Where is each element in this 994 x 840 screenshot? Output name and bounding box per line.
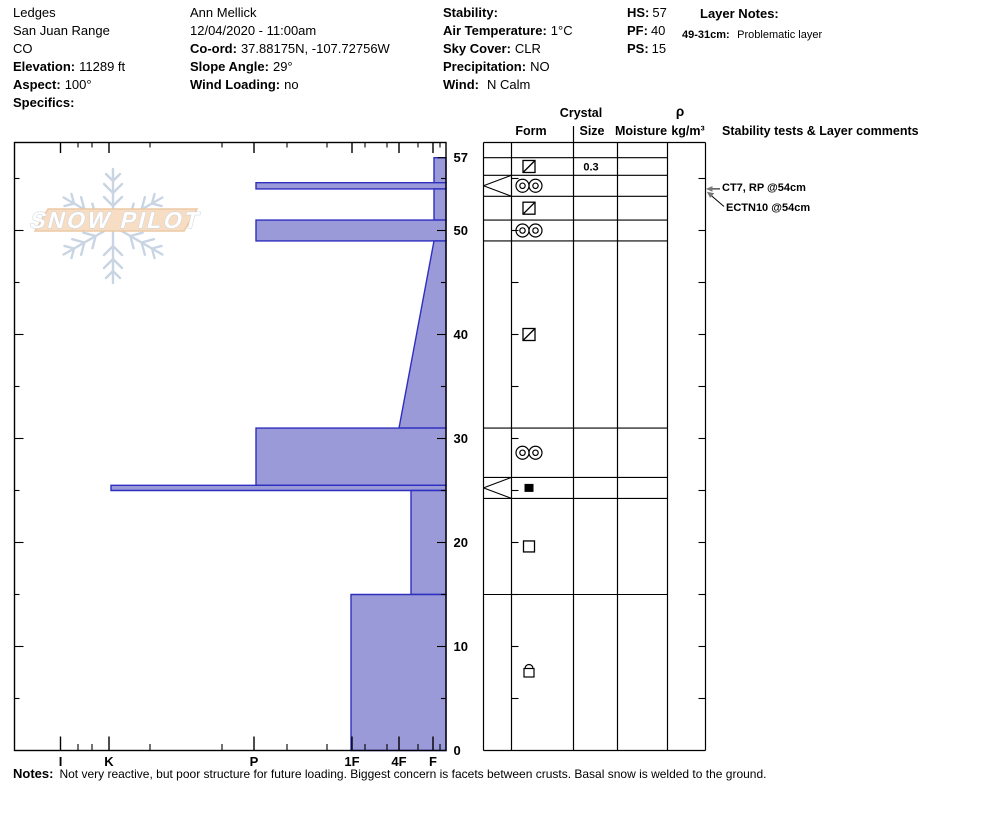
site-info-column: Ledges San Juan Range CO Elevation:11289… (13, 4, 125, 112)
thin-layer-callout (484, 175, 512, 196)
test-arrowhead (706, 186, 713, 192)
facets-icon (524, 541, 535, 552)
slope-angle-row: Slope Angle:29° (190, 58, 390, 76)
moisture-column-header: Moisture (606, 124, 676, 138)
sky-cover-row: Sky Cover:CLR (443, 40, 573, 58)
coord-label: Co-ord: (190, 41, 237, 56)
melt-cluster-icon (529, 224, 542, 237)
wind-row: Wind:N Calm (443, 76, 573, 94)
test-arrow-line (710, 195, 724, 207)
layer-note-item: 49-31cm: Problematic layer (682, 25, 822, 43)
ps-row: PS:15 (627, 40, 667, 58)
ps-value: 15 (652, 41, 666, 56)
sky-cover-value: CLR (515, 41, 541, 56)
state: CO (13, 40, 125, 58)
depth-axis-label: 40 (454, 327, 468, 342)
wind-value: N Calm (487, 77, 530, 92)
wind-loading-row: Wind Loading:no (190, 76, 390, 94)
crystal-header: Crystal (546, 106, 616, 120)
depth-axis-label: 30 (454, 431, 468, 446)
elevation-value: 11289 ft (79, 59, 125, 74)
wind-label: Wind: (443, 77, 479, 92)
stability-label: Stability: (443, 5, 498, 20)
coord-value: 37.88175N, -107.72756W (241, 41, 390, 56)
precipitation-label: Precipitation: (443, 59, 526, 74)
melt-cluster-icon (516, 179, 529, 192)
pit-notes: Notes:Not very reactive, but poor struct… (13, 766, 767, 781)
air-temp-row: Air Temperature:1°C (443, 22, 573, 40)
pf-row: PF:40 (627, 22, 667, 40)
density-header-symbol: ρ (660, 104, 700, 119)
slope-angle-label: Slope Angle: (190, 59, 269, 74)
thin-layer-callout (484, 477, 512, 498)
snowpilot-watermark: SNOW PILOT (27, 169, 204, 283)
mountain-range: San Juan Range (13, 22, 125, 40)
pf-label: PF: (627, 23, 648, 38)
melt-cluster-icon (529, 446, 542, 459)
layer-bar (351, 595, 446, 751)
sky-cover-label: Sky Cover: (443, 41, 511, 56)
pf-value: 40 (651, 23, 665, 38)
layer-note-text: Problematic layer (737, 29, 822, 41)
air-temp-value: 1°C (551, 23, 573, 38)
layer-notes-title: Layer Notes: (700, 6, 779, 21)
snowpack-summary-column: HS:57 PF:40 PS:15 (627, 4, 667, 58)
comments-column-header: Stability tests & Layer comments (722, 124, 919, 138)
snowpilot-profile-page: { "site": { "pit_name": "Ledges", "range… (0, 0, 994, 840)
ice-layer-icon (525, 484, 534, 492)
hs-label: HS: (627, 5, 649, 20)
observer-info-column: Ann Mellick 12/04/2020 - 11:00am Co-ord:… (190, 4, 390, 94)
layer-bar (256, 220, 446, 241)
hs-row: HS:57 (627, 4, 667, 22)
form-column-header: Form (496, 124, 566, 138)
aspect-row: Aspect:100° (13, 76, 125, 94)
precipitation-row: Precipitation:NO (443, 58, 573, 76)
depth-axis-label: 57 (454, 150, 468, 165)
notes-label: Notes: (13, 766, 53, 781)
elevation-label: Elevation: (13, 59, 75, 74)
layer-table-grid (484, 126, 706, 751)
stability-test-result: ECTN10 @54cm (726, 202, 810, 214)
aspect-label: Aspect: (13, 77, 61, 92)
layer-bar (434, 189, 446, 220)
snowpilot-logo-text: SNOW PILOT (27, 207, 204, 233)
coordinates-row: Co-ord:37.88175N, -107.72756W (190, 40, 390, 58)
melt-cluster-icon (516, 446, 529, 459)
melt-cluster-icon (529, 179, 542, 192)
precipitation-value: NO (530, 59, 550, 74)
depth-axis-label: 0 (454, 743, 461, 758)
pit-name: Ledges (13, 4, 125, 22)
stability-test-result: CT7, RP @54cm (722, 182, 806, 194)
grain-size-value: 0.3 (583, 161, 598, 173)
air-temp-label: Air Temperature: (443, 23, 547, 38)
density-header-units: kg/m³ (668, 124, 708, 138)
aspect-value: 100° (65, 77, 92, 92)
layer-note-range: 49-31cm: (682, 29, 730, 41)
slope-angle-value: 29° (273, 59, 293, 74)
depth-axis-label: 20 (454, 535, 468, 550)
crystal-form-symbols: 0.3 (516, 160, 599, 677)
depth-axis-label: 10 (454, 639, 468, 654)
layer-bar (256, 428, 446, 485)
elevation-row: Elevation:11289 ft (13, 58, 125, 76)
ps-label: PS: (627, 41, 649, 56)
conditions-column: Stability: Air Temperature:1°C Sky Cover… (443, 4, 573, 94)
wind-loading-value: no (284, 77, 298, 92)
notes-text: Not very reactive, but poor structure fo… (59, 767, 766, 781)
depth-axis-label: 50 (454, 223, 468, 238)
layer-bar (256, 183, 446, 189)
stability-row: Stability: (443, 4, 573, 22)
hs-value: 57 (652, 5, 666, 20)
observer-name: Ann Mellick (190, 4, 390, 22)
layer-bar (111, 485, 446, 490)
wind-loading-label: Wind Loading: (190, 77, 280, 92)
specifics-label: Specifics: (13, 95, 74, 110)
specifics-row: Specifics: (13, 94, 125, 112)
observation-datetime: 12/04/2020 - 11:00am (190, 22, 390, 40)
